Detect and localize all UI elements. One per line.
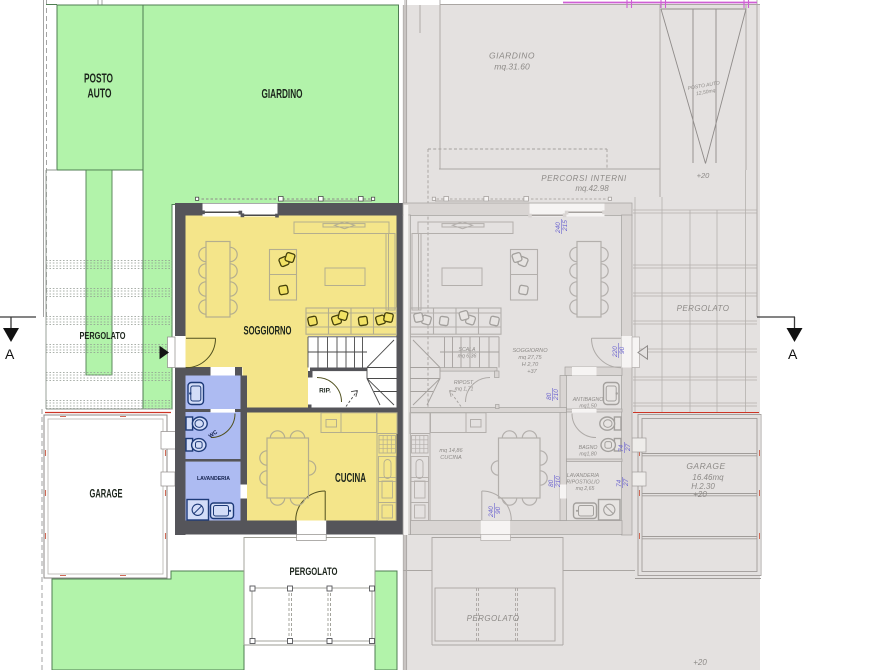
svg-text:240: 240 xyxy=(555,222,562,234)
svg-text:80: 80 xyxy=(546,392,553,400)
svg-text:220: 220 xyxy=(612,346,619,358)
svg-text:mq.42.98: mq.42.98 xyxy=(575,184,609,193)
svg-text:90: 90 xyxy=(495,506,502,514)
svg-text:CUCINA: CUCINA xyxy=(335,471,366,485)
svg-text:27: 27 xyxy=(625,443,632,452)
svg-text:PERGOLATO: PERGOLATO xyxy=(290,566,338,578)
svg-text:27: 27 xyxy=(623,478,630,487)
svg-text:240: 240 xyxy=(488,506,495,518)
svg-text:74: 74 xyxy=(616,479,623,487)
svg-text:PERGOLATO: PERGOLATO xyxy=(467,614,520,623)
svg-text:GARAGE: GARAGE xyxy=(90,487,123,501)
svg-text:mq 6,36: mq 6,36 xyxy=(458,354,477,360)
svg-text:mq.31.60: mq.31.60 xyxy=(494,62,530,72)
svg-text:CUCINA: CUCINA xyxy=(440,455,462,461)
svg-text:SOGGIORNO: SOGGIORNO xyxy=(244,324,292,338)
svg-text:16.46mq: 16.46mq xyxy=(692,473,724,482)
svg-text:+20: +20 xyxy=(693,490,707,499)
svg-text:+20: +20 xyxy=(697,171,711,180)
svg-text:mq1,80: mq1,80 xyxy=(579,452,596,458)
svg-text:BAGNO: BAGNO xyxy=(579,445,598,451)
svg-text:mq 2,65: mq 2,65 xyxy=(576,486,595,492)
svg-text:ANTIBAGNO: ANTIBAGNO xyxy=(572,397,604,403)
svg-text:GIARDINO: GIARDINO xyxy=(489,51,535,61)
svg-text:mq1,50: mq1,50 xyxy=(579,404,596,410)
svg-text:80: 80 xyxy=(548,479,555,487)
svg-text:H 2,70: H 2,70 xyxy=(522,362,539,368)
svg-text:215: 215 xyxy=(562,220,569,232)
svg-text:mq 14,86: mq 14,86 xyxy=(439,448,463,454)
svg-text:RIP.: RIP. xyxy=(319,388,331,395)
svg-text:PERGOLATO: PERGOLATO xyxy=(80,331,126,342)
svg-text:GIARDINO: GIARDINO xyxy=(262,87,303,101)
svg-text:+20: +20 xyxy=(693,658,707,667)
svg-text:210: 210 xyxy=(553,389,560,401)
svg-text:PERCORSI INTERNI: PERCORSI INTERNI xyxy=(541,174,627,183)
svg-text:RIPOST.: RIPOST. xyxy=(454,380,474,386)
svg-text:RIPOSTIGLIO: RIPOSTIGLIO xyxy=(566,480,599,486)
svg-text:LAVANDERIA: LAVANDERIA xyxy=(567,473,600,479)
svg-text:mq 1,71: mq 1,71 xyxy=(455,387,474,393)
svg-text:A: A xyxy=(5,346,15,362)
svg-text:GARAGE: GARAGE xyxy=(686,461,725,471)
svg-text:mq 27,75: mq 27,75 xyxy=(518,355,542,361)
svg-text:74: 74 xyxy=(618,444,625,452)
svg-text:PERGOLATO: PERGOLATO xyxy=(677,304,730,313)
svg-text:SOGGIORNO: SOGGIORNO xyxy=(512,348,548,354)
svg-text:SCALA: SCALA xyxy=(458,347,476,353)
svg-text:POSTO: POSTO xyxy=(84,72,113,86)
svg-text:LAVANDERIA: LAVANDERIA xyxy=(197,476,230,482)
svg-text:A: A xyxy=(788,346,798,362)
svg-text:90: 90 xyxy=(619,346,626,354)
svg-text:+37: +37 xyxy=(527,369,537,375)
svg-text:210: 210 xyxy=(555,476,562,488)
svg-text:AUTO: AUTO xyxy=(88,87,112,101)
